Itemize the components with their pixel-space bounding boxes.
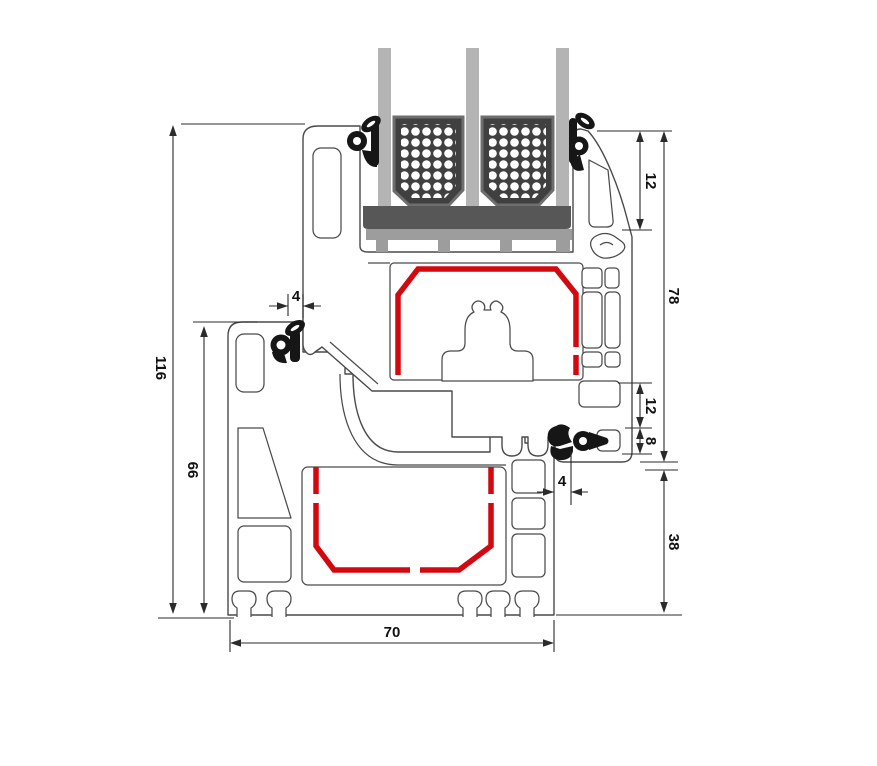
profile-cell	[512, 460, 545, 493]
drawing-canvas: 116 66 4 12 78 12 8 4 38 70	[0, 0, 877, 766]
dim-label-rebate-lip: 8	[642, 437, 659, 445]
profile-cell	[582, 292, 602, 348]
glazing-bridge-bar	[366, 229, 572, 240]
arrowhead	[660, 451, 668, 462]
dim-label-gasket-bottom: 4	[558, 473, 567, 490]
glazing-bridge-leg	[376, 240, 388, 252]
arrowhead	[660, 131, 668, 142]
gasket-hole	[277, 341, 286, 350]
steel-gap	[311, 494, 321, 503]
dim-label-gasket-top: 4	[292, 288, 301, 305]
profile-cell	[582, 352, 602, 367]
dim-label-frame-face-height: 38	[665, 534, 682, 551]
profile-cell	[236, 334, 264, 392]
arrowhead	[200, 326, 208, 337]
glazing-bridge-leg	[556, 240, 570, 252]
glazing-unit	[363, 48, 572, 252]
steel-gap	[571, 347, 581, 355]
glazing-bridge-leg	[438, 240, 450, 252]
spacer-dots-right	[489, 124, 546, 198]
gasket-lip	[290, 330, 300, 362]
glass-pane-outer	[556, 48, 569, 207]
glass-pane-middle	[466, 48, 479, 207]
glass-pane-inner	[378, 48, 391, 207]
dim-label-frame-height: 66	[184, 462, 201, 479]
gasket-hole	[579, 437, 587, 445]
arrowhead	[636, 383, 644, 394]
arrowhead	[200, 603, 208, 614]
dim-label-profile-depth: 70	[384, 624, 401, 641]
arrowhead	[660, 470, 668, 481]
arrowhead	[169, 603, 177, 614]
gasket-tail	[362, 150, 377, 167]
window-section-drawing: 116 66 4 12 78 12 8 4 38 70	[0, 0, 877, 766]
steel-gap	[486, 494, 496, 503]
arrowhead	[543, 639, 554, 647]
dim-label-sash-height: 78	[665, 288, 682, 305]
profile-cell	[512, 498, 545, 529]
dim-label-rebate-height: 12	[642, 398, 659, 415]
profile-cell	[605, 268, 619, 288]
arrowhead	[571, 488, 582, 496]
dim-label-overall-height: 116	[152, 356, 169, 380]
profile-cell	[582, 268, 602, 288]
arrowhead	[230, 639, 241, 647]
arrowhead	[636, 131, 644, 142]
glazing-bridge-leg	[500, 240, 512, 252]
profile-cell	[512, 534, 545, 577]
arrowhead	[636, 417, 644, 428]
profile-cell	[605, 292, 620, 348]
arrowhead	[660, 602, 668, 613]
glazing-bridge	[366, 229, 572, 252]
spacer-dots-left	[401, 124, 456, 198]
gasket-hole	[575, 142, 583, 150]
profile-cell	[313, 148, 341, 238]
arrowhead	[277, 302, 288, 310]
profile-cell	[579, 381, 620, 407]
setting-block	[363, 206, 571, 229]
profile-cell	[238, 526, 291, 582]
dim-label-glazing-overlap: 12	[642, 173, 659, 190]
arrowhead	[636, 219, 644, 230]
arrowhead	[169, 125, 177, 136]
gasket-hole	[353, 137, 361, 145]
profile-cell	[605, 352, 620, 367]
steel-gap	[410, 566, 420, 574]
